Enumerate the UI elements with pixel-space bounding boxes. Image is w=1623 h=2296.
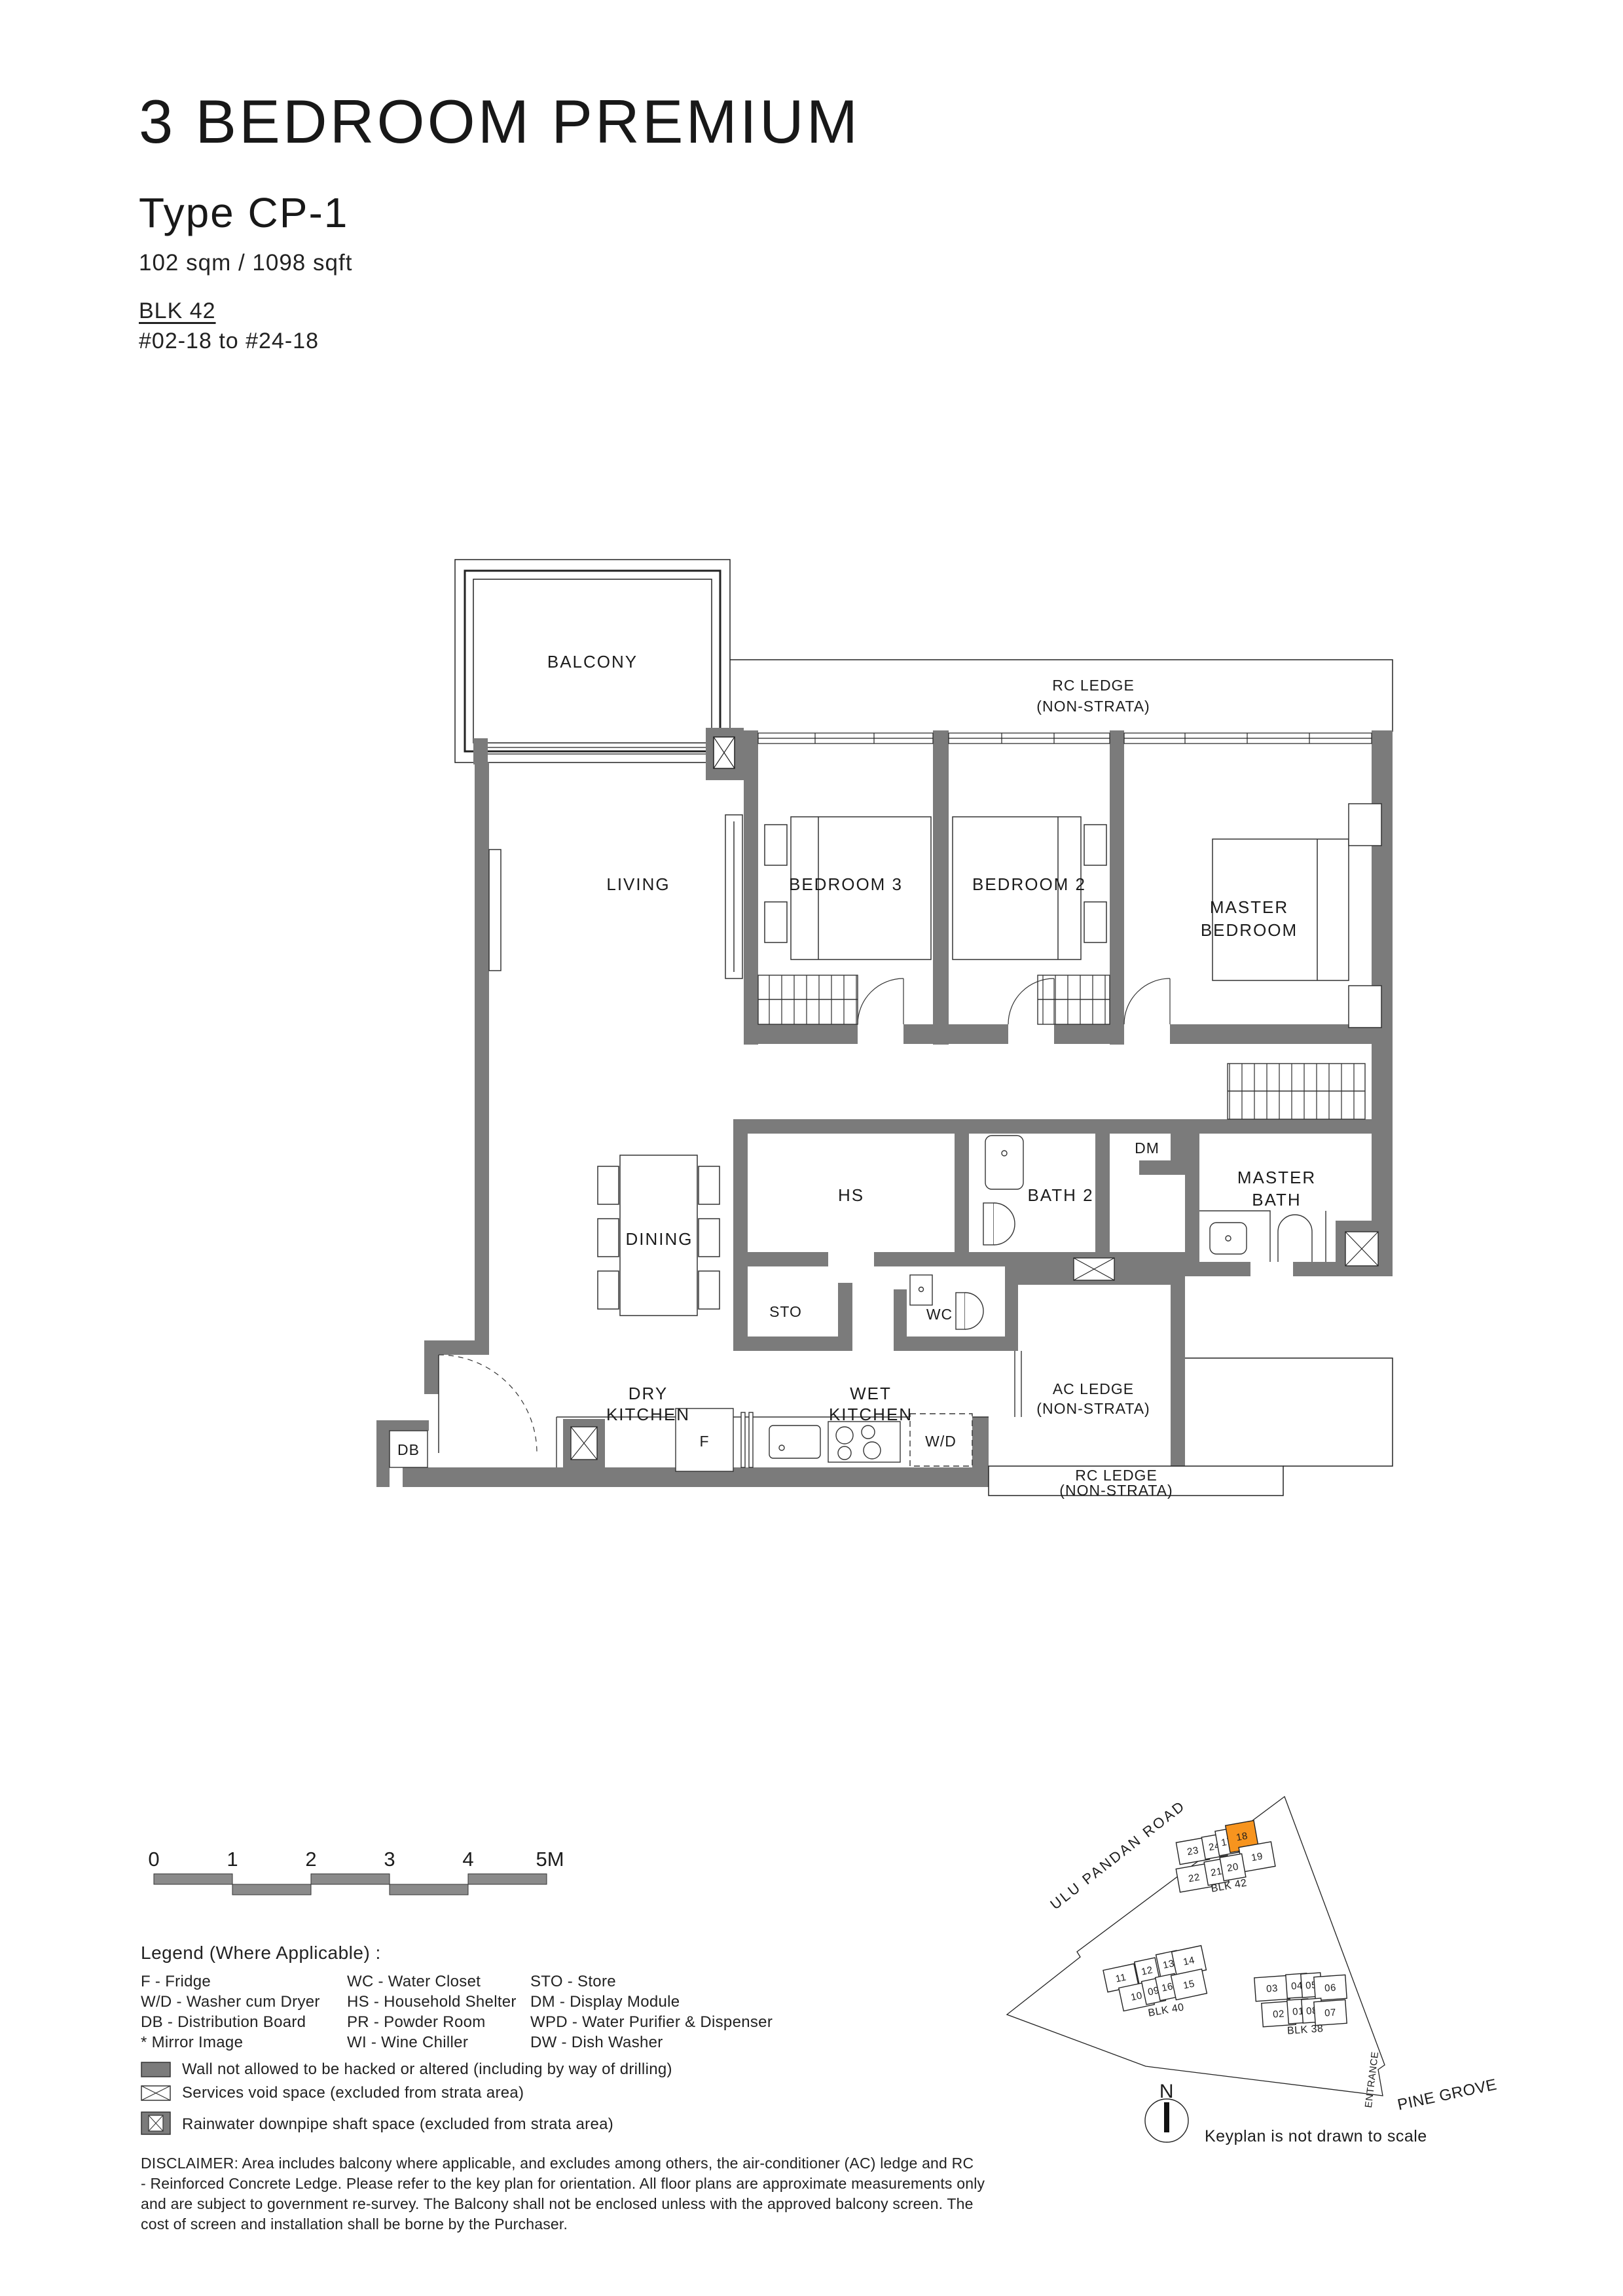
legend-item: WC - Water Closet — [347, 1971, 517, 1992]
floorplan-page: 3 BEDROOM PREMIUM Type CP-1 102 sqm / 10… — [0, 0, 1623, 2296]
keyplan-blk38: 03 04 05 06 02 01 08 07 — [1254, 1973, 1347, 2027]
label-rc-ledge-top-2: (NON-STRATA) — [1036, 698, 1150, 715]
rc-ledge-top-boundary — [730, 660, 1393, 732]
services-void-symbol-label: Services void space (excluded from strat… — [182, 2084, 524, 2102]
unit-type: Type CP-1 — [139, 188, 348, 237]
unit-22: 22 — [1188, 1872, 1201, 1885]
rainwater-downpipe-symbol-label: Rainwater downpipe shaft space (excluded… — [182, 2115, 613, 2134]
disclaimer-line: and are subject to government re-survey.… — [141, 2194, 985, 2214]
services-void-corridor — [1074, 1258, 1114, 1280]
legend-item: WI - Wine Chiller — [347, 2032, 517, 2053]
label-wc: WC — [926, 1306, 953, 1323]
north-compass: N — [1145, 2081, 1188, 2142]
scale-tick-0: 0 — [148, 1848, 159, 1871]
entrance-label: ENTRANCE — [1363, 2051, 1381, 2108]
label-ac-ledge-1: AC LEDGE — [1053, 1380, 1134, 1397]
legend-item: DM - Display Module — [530, 1992, 773, 2012]
scale-tick-3: 3 — [384, 1848, 395, 1871]
kitchen-fixtures — [390, 1351, 1021, 1471]
legend-item: WPD - Water Purifier & Dispenser — [530, 2012, 773, 2032]
legend-col1: F - Fridge W/D - Washer cum Dryer DB - D… — [141, 1971, 320, 2053]
legend-item: DB - Distribution Board — [141, 2012, 320, 2032]
rainwater-downpipe-masterbath — [1345, 1232, 1378, 1266]
legend-item: DW - Dish Washer — [530, 2032, 773, 2053]
label-balcony: BALCONY — [547, 652, 638, 672]
label-dry-kitchen-1: DRY — [629, 1384, 668, 1403]
legend-title: Legend (Where Applicable) : — [141, 1943, 381, 1964]
unit-15: 15 — [1182, 1978, 1196, 1991]
road-pine-grove: PINE GROVE — [1396, 2075, 1499, 2114]
legend-col3: STO - Store DM - Display Module WPD - Wa… — [530, 1971, 773, 2053]
legend-col2: WC - Water Closet HS - Household Shelter… — [347, 1971, 517, 2053]
road-ulu-pandan: ULU PANDAN ROAD — [1047, 1797, 1188, 1913]
label-master-bedroom-1: MASTER — [1210, 897, 1288, 917]
label-dry-kitchen-2: KITCHEN — [606, 1405, 690, 1424]
label-ac-ledge-2: (NON-STRATA) — [1036, 1400, 1150, 1417]
unit-range: #02-18 to #24-18 — [139, 329, 319, 354]
wall-symbol-icon — [141, 2062, 171, 2077]
legend-item: W/D - Washer cum Dryer — [141, 1992, 320, 2012]
unit-19: 19 — [1250, 1851, 1264, 1864]
label-master-bath-2: BATH — [1252, 1190, 1301, 1210]
unit-07: 07 — [1324, 2007, 1337, 2018]
unit-02: 02 — [1273, 2008, 1285, 2020]
floorplan-drawing: BALCONY LIVING BEDROOM 3 BEDROOM 2 MASTE… — [340, 543, 1395, 1505]
keyplan: ULU PANDAN ROAD PINE GROVE ENTRANCE 23 2… — [982, 1767, 1623, 2186]
label-dm: DM — [1135, 1139, 1159, 1157]
legend-item: HS - Household Shelter — [347, 1992, 517, 2012]
services-void-symbol-icon — [141, 2085, 171, 2101]
disclaimer: DISCLAIMER: Area includes balcony where … — [141, 2153, 985, 2234]
wardrobes — [758, 975, 1365, 1119]
unit-area: 102 sqm / 1098 sqft — [139, 250, 352, 276]
label-sto: STO — [769, 1303, 802, 1320]
label-rc-ledge-bot-2: (NON-STRATA) — [1059, 1482, 1173, 1499]
label-master-bedroom-2: BEDROOM — [1201, 920, 1298, 940]
unit-14: 14 — [1182, 1954, 1196, 1967]
unit-11: 11 — [1114, 1971, 1127, 1984]
unit-03: 03 — [1266, 1982, 1279, 1994]
unit-18-highlighted: 18 — [1235, 1831, 1249, 1844]
legend-item: PR - Powder Room — [347, 2012, 517, 2032]
label-rc-ledge-top-1: RC LEDGE — [1052, 677, 1135, 694]
rainwater-downpipe-symbol-icon — [141, 2111, 171, 2135]
label-wd: W/D — [925, 1433, 957, 1450]
label-bedroom2: BEDROOM 2 — [972, 874, 1086, 894]
unit-20: 20 — [1226, 1861, 1239, 1874]
label-wet-kitchen-2: KITCHEN — [829, 1405, 913, 1424]
label-fridge: F — [699, 1433, 709, 1450]
label-db: DB — [397, 1441, 420, 1458]
disclaimer-line: cost of screen and installation shall be… — [141, 2214, 985, 2234]
compass-n: N — [1159, 2081, 1174, 2102]
blk38-label: BLK 38 — [1286, 2023, 1324, 2037]
label-wet-kitchen-1: WET — [850, 1384, 892, 1403]
label-dining: DINING — [626, 1229, 693, 1249]
scale-bar: 0 1 2 3 4 5M — [141, 1842, 586, 1908]
keyplan-note: Keyplan is not drawn to scale — [1205, 2127, 1427, 2145]
legend-item: STO - Store — [530, 1971, 773, 1992]
scale-tick-2: 2 — [305, 1848, 316, 1871]
rainwater-downpipe-balcony — [706, 728, 744, 780]
scale-tick-4: 4 — [462, 1848, 473, 1871]
ledge-outlines — [989, 1358, 1393, 1496]
legend-item: * Mirror Image — [141, 2032, 320, 2053]
services-void-kitchen — [563, 1419, 605, 1467]
label-bedroom3: BEDROOM 3 — [789, 874, 903, 894]
label-hs: HS — [838, 1185, 864, 1205]
disclaimer-line: - Reinforced Concrete Ledge. Please refe… — [141, 2174, 985, 2194]
top-windows — [758, 733, 1372, 744]
keyplan-blk40: 11 12 13 14 10 09 16 15 — [1103, 1946, 1207, 2011]
page-title: 3 BEDROOM PREMIUM — [139, 86, 860, 157]
label-bath2: BATH 2 — [1027, 1185, 1093, 1205]
label-living: LIVING — [606, 874, 670, 894]
block-number: BLK 42 — [139, 298, 216, 324]
unit-23: 23 — [1186, 1845, 1199, 1858]
label-master-bath-1: MASTER — [1237, 1168, 1316, 1187]
wall-symbol-label: Wall not allowed to be hacked or altered… — [182, 2060, 672, 2079]
unit-12: 12 — [1140, 1964, 1154, 1977]
bath-fixtures — [910, 1136, 1326, 1329]
disclaimer-line: DISCLAIMER: Area includes balcony where … — [141, 2153, 985, 2174]
unit-10: 10 — [1130, 1990, 1144, 2003]
scale-tick-1: 1 — [227, 1848, 238, 1871]
unit-06: 06 — [1324, 1982, 1337, 1994]
scale-tick-5: 5M — [536, 1848, 564, 1871]
legend-item: F - Fridge — [141, 1971, 320, 1992]
